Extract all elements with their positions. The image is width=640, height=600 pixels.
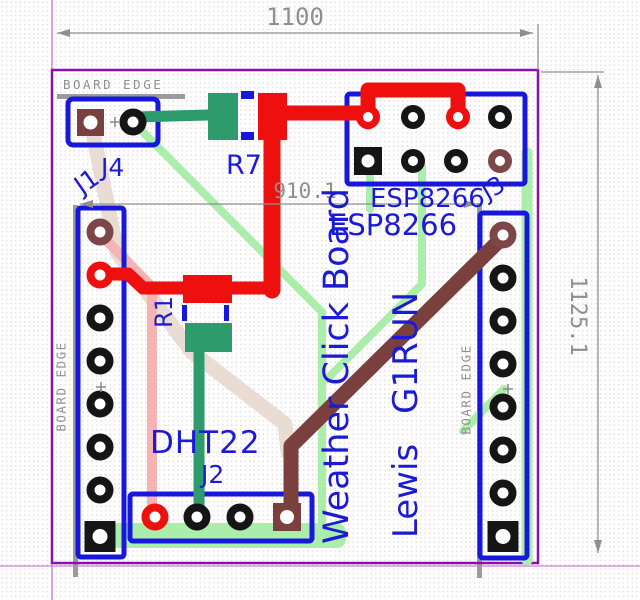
dht22-text[interactable]: DHT22: [150, 428, 261, 459]
dimension-top-value[interactable]: 1100: [255, 5, 335, 29]
pad-esp-1[interactable]: [360, 109, 377, 126]
pad-esp-2[interactable]: [405, 109, 422, 126]
pad-j5-2[interactable]: [494, 269, 513, 288]
pad-esp-4[interactable]: [492, 109, 509, 126]
pad-j5-3[interactable]: [494, 312, 513, 331]
pad-j5-6[interactable]: [494, 441, 513, 460]
pad-j1-7[interactable]: [91, 481, 110, 500]
pad-j1-1[interactable]: [91, 223, 110, 242]
pad-r7-2[interactable]: [258, 93, 287, 140]
ref-j4[interactable]: J4: [101, 155, 124, 180]
pad-esp-7[interactable]: [448, 153, 465, 170]
pad-j5-4[interactable]: [494, 355, 513, 374]
author-text[interactable]: Lewis G1RUN: [387, 283, 425, 547]
pad-j2-2[interactable]: [188, 508, 207, 527]
pad-esp-6[interactable]: [405, 153, 422, 170]
ref-r1[interactable]: R1: [150, 292, 178, 332]
board-edge-label-right: BOARD EDGE: [460, 335, 475, 445]
pcb-editor-canvas[interactable]: 1100 910.1 1125.1 BOARD EDGE BOARD EDGE …: [0, 0, 640, 600]
pad-r1-2[interactable]: [185, 323, 232, 352]
pad-j1-6[interactable]: [91, 438, 110, 457]
pad-j1-3[interactable]: [91, 309, 110, 328]
pad-j4-2[interactable]: [124, 113, 143, 132]
ref-j2[interactable]: J2: [201, 462, 224, 487]
pad-j1-4[interactable]: [91, 352, 110, 371]
pad-j2-3[interactable]: [231, 508, 250, 527]
pad-j1-5[interactable]: [91, 395, 110, 414]
board-title-text[interactable]: Weather Click Board: [317, 185, 357, 547]
pad-r1-1[interactable]: [183, 275, 232, 303]
dimension-right-value[interactable]: 1125.1: [565, 278, 589, 354]
pad-j5-5[interactable]: [494, 398, 513, 417]
pad-j2-1[interactable]: [146, 508, 165, 527]
board-edge-label-top: BOARD EDGE: [63, 79, 163, 92]
pad-j1-2[interactable]: [91, 266, 110, 285]
author-name: Lewis: [389, 444, 423, 538]
pad-esp-8[interactable]: [492, 153, 509, 170]
pad-j5-7[interactable]: [494, 484, 513, 503]
author-callsign: G1RUN: [389, 292, 423, 414]
pad-j5-1[interactable]: [494, 226, 513, 245]
pad-r7-1[interactable]: [208, 93, 238, 140]
trace-teal-j4-to-r7[interactable]: [136, 115, 208, 117]
board-edge-label-left: BOARD EDGE: [55, 332, 70, 442]
ref-r7[interactable]: R7: [226, 152, 262, 179]
pad-esp-3[interactable]: [450, 109, 467, 126]
